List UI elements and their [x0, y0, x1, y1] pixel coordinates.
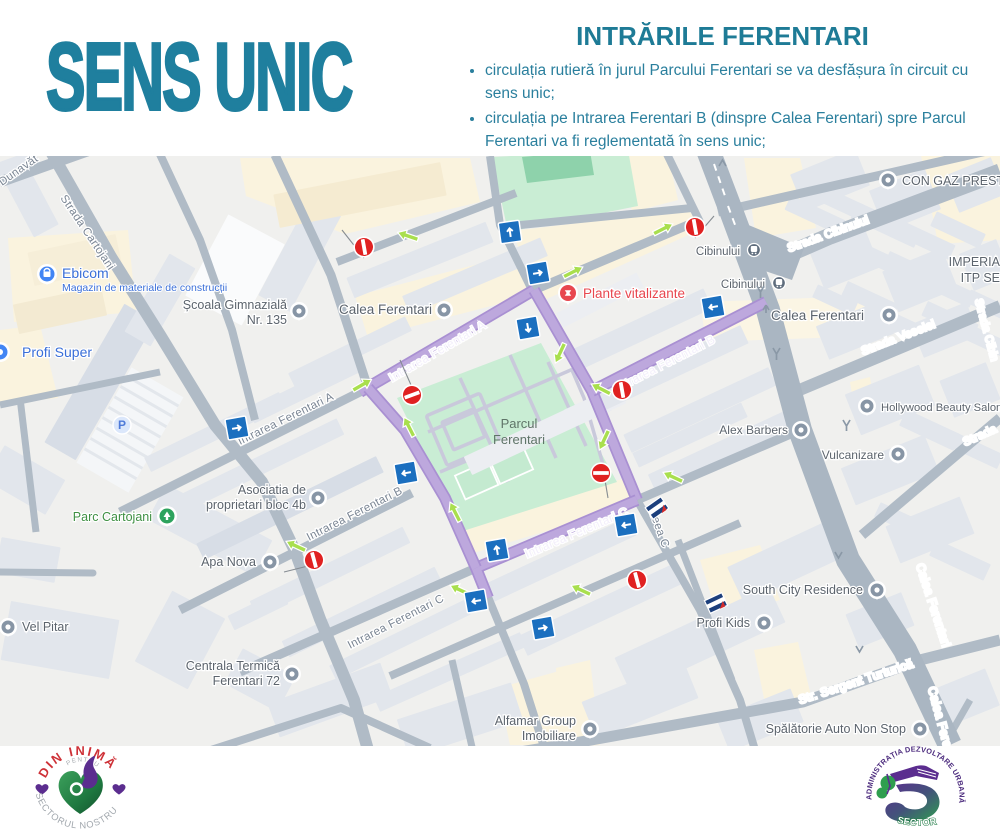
- svg-text:Nr. 135: Nr. 135: [247, 313, 287, 327]
- svg-text:proprietari bloc 4b: proprietari bloc 4b: [206, 498, 306, 512]
- svg-text:Centrala Termică: Centrala Termică: [186, 659, 280, 673]
- svg-text:Școala Gimnazială: Școala Gimnazială: [183, 298, 287, 312]
- svg-text:Parc Cartojani: Parc Cartojani: [73, 510, 152, 524]
- svg-text:Alfamar Group: Alfamar Group: [495, 714, 576, 728]
- svg-text:Plante vitalizante: Plante vitalizante: [583, 286, 685, 301]
- svg-text:Cibinului: Cibinului: [696, 246, 740, 258]
- svg-text:Spălătorie Auto Non Stop: Spălătorie Auto Non Stop: [766, 722, 906, 736]
- svg-text:Ferentari: Ferentari: [493, 432, 545, 447]
- svg-text:Vulcanizare: Vulcanizare: [822, 448, 885, 462]
- svg-text:ITP SE: ITP SE: [961, 271, 1000, 285]
- svg-text:Hollywood Beauty Salon: Hollywood Beauty Salon: [881, 402, 1000, 414]
- svg-text:South City Residence: South City Residence: [743, 583, 863, 597]
- svg-text:Calea Ferentari: Calea Ferentari: [339, 302, 432, 317]
- svg-text:Profi Super: Profi Super: [22, 344, 92, 360]
- svg-text:Vel Pitar: Vel Pitar: [22, 620, 69, 634]
- svg-text:Parcul: Parcul: [501, 416, 538, 431]
- svg-text:Apa Nova: Apa Nova: [201, 555, 256, 569]
- svg-text:Asociatia de: Asociatia de: [238, 483, 306, 497]
- svg-text:CON GAZ PREST S R: CON GAZ PREST S R: [902, 174, 1000, 188]
- svg-text:Profi Kids: Profi Kids: [697, 616, 751, 630]
- svg-text:Ferentari 72: Ferentari 72: [213, 674, 280, 688]
- svg-text:Ebicom: Ebicom: [62, 265, 109, 281]
- svg-text:IMPERIA: IMPERIA: [949, 255, 1000, 269]
- svg-text:Imobiliare: Imobiliare: [522, 729, 576, 743]
- svg-text:Calea Ferentari: Calea Ferentari: [771, 308, 864, 323]
- svg-text:Magazin de materiale de constr: Magazin de materiale de construcții: [62, 282, 227, 294]
- svg-text:P: P: [118, 418, 126, 432]
- svg-text:Alex Barbers: Alex Barbers: [719, 423, 788, 437]
